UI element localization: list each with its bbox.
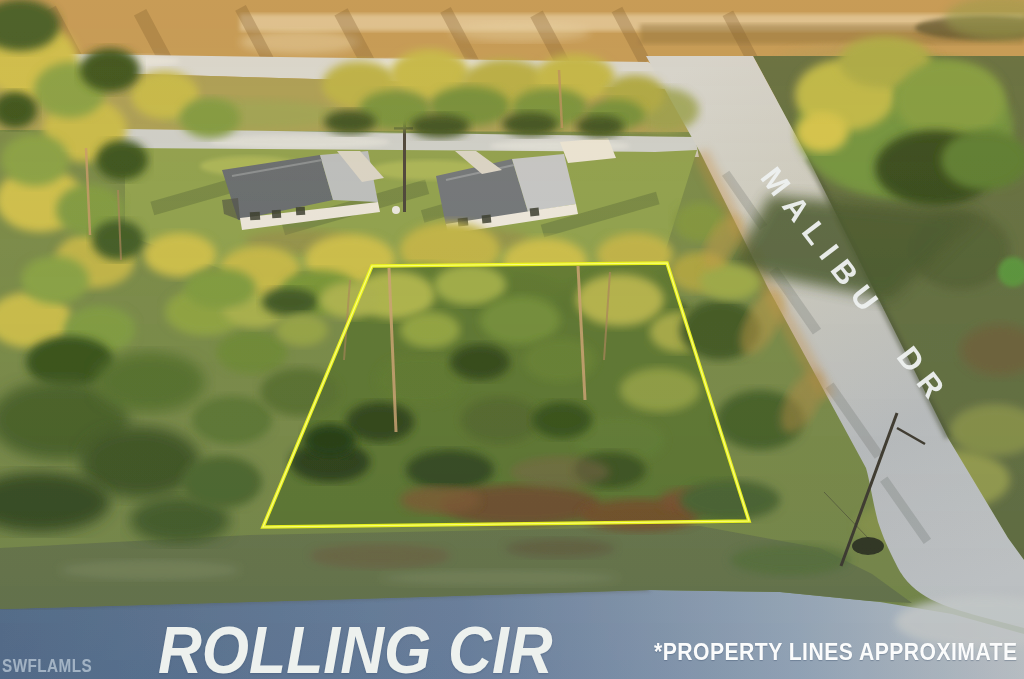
aerial-photo-canvas: MALIBU DR [0, 0, 1024, 679]
light-overlay [0, 0, 1024, 679]
aerial-photo: MALIBU DR ROLLING CIR *PROPERTY LINES AP… [0, 0, 1024, 679]
